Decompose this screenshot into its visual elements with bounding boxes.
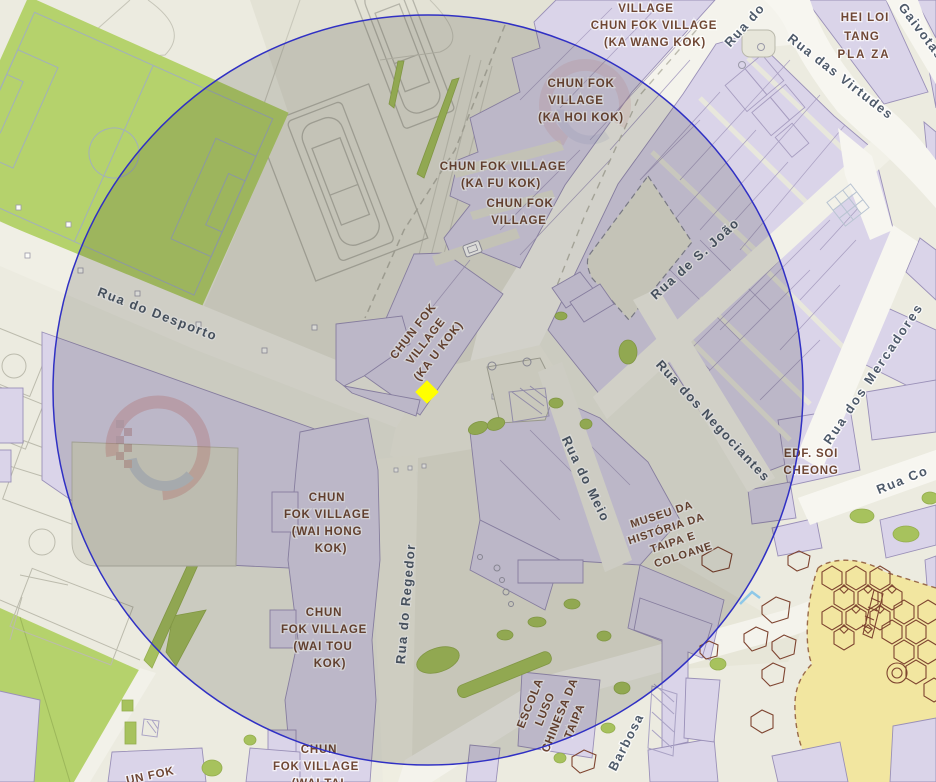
svg-text:VILLAGE: VILLAGE xyxy=(618,3,673,15)
svg-text:TANG: TANG xyxy=(844,31,880,43)
svg-text:FOK VILLAGE: FOK VILLAGE xyxy=(273,761,359,773)
svg-text:HEI LOI: HEI LOI xyxy=(841,12,890,24)
svg-text:(WAI TAI: (WAI TAI xyxy=(292,778,345,782)
svg-text:CHUN FOK VILLAGE: CHUN FOK VILLAGE xyxy=(591,20,718,32)
svg-text:(KA WANG KOK): (KA WANG KOK) xyxy=(604,37,706,49)
svg-text:PLA ZA: PLA ZA xyxy=(837,49,890,61)
